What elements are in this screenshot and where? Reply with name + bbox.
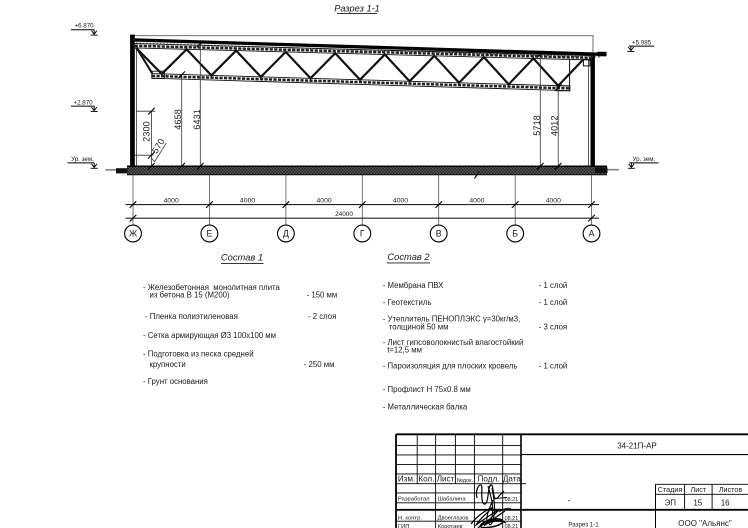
svg-text:- Мембрана ПВХ: - Мембрана ПВХ (383, 281, 444, 290)
svg-text:Подл.: Подл. (478, 474, 500, 483)
svg-text:- 150 мм: - 150 мм (307, 290, 338, 299)
svg-text:Кол.: Кол. (418, 474, 434, 483)
svg-text:ЭП: ЭП (664, 499, 676, 508)
svg-text:4012: 4012 (550, 115, 560, 136)
svg-text:08.21: 08.21 (505, 516, 518, 522)
svg-text:16: 16 (721, 499, 730, 508)
svg-text:Разрез 1-1: Разрез 1-1 (568, 521, 599, 528)
svg-text:+2.870: +2.870 (73, 99, 93, 106)
svg-text:- Пленка полиэтиленовая: - Пленка полиэтиленовая (145, 312, 238, 321)
svg-text:из бетона В 15 (М200): из бетона В 15 (М200) (150, 290, 230, 299)
svg-text:Разрез 1-1: Разрез 1-1 (334, 3, 380, 13)
svg-text:Лист: Лист (690, 485, 706, 494)
svg-text:- Грунт основания: - Грунт основания (143, 377, 208, 386)
svg-text:570: 570 (150, 137, 167, 155)
svg-text:2300: 2300 (141, 121, 151, 142)
svg-text:Д: Д (283, 228, 289, 238)
svg-text:- 2 слоя: - 2 слоя (308, 312, 336, 321)
svg-text:А: А (589, 228, 595, 238)
svg-text:+6.870: +6.870 (74, 23, 94, 30)
svg-text:+5.985: +5.985 (632, 40, 652, 47)
svg-text:Состав 2: Состав 2 (387, 251, 430, 262)
svg-text:Ж: Ж (129, 228, 137, 238)
svg-text:В: В (436, 228, 442, 238)
svg-text:- Сетка армирующая Ø3 100х100: - Сетка армирующая Ø3 100х100 мм (143, 331, 276, 340)
svg-text:4000: 4000 (393, 197, 408, 204)
svg-text:Шабалина: Шабалина (438, 496, 467, 502)
svg-text:Н. контр.: Н. контр. (398, 515, 422, 521)
svg-text:Ур. зем.: Ур. зем. (71, 156, 94, 163)
svg-text:Стадия: Стадия (658, 485, 683, 494)
svg-text:4658: 4658 (173, 109, 183, 130)
svg-text:крупности: крупности (150, 360, 186, 369)
svg-text:- Пароизоляция для плоских кро: - Пароизоляция для плоских кровель (383, 361, 518, 370)
svg-text:- 250 мм: - 250 мм (304, 360, 335, 369)
svg-text:34-21П-АР: 34-21П-АР (617, 442, 657, 451)
svg-text:Коротаев: Коротаев (438, 524, 463, 528)
svg-text:- 1 слой: - 1 слой (539, 298, 568, 307)
svg-text:4000: 4000 (546, 197, 561, 204)
svg-text:08.21: 08.21 (505, 497, 518, 503)
svg-text:- Подготовка из песка средней: - Подготовка из песка средней (143, 350, 254, 359)
svg-text:4000: 4000 (469, 197, 484, 204)
svg-text:08.21: 08.21 (505, 524, 518, 528)
svg-text:№док.: №док. (457, 478, 474, 484)
svg-text:4000: 4000 (317, 197, 332, 204)
svg-text:6431: 6431 (192, 109, 202, 130)
svg-text:- Металлическая балка: - Металлическая балка (383, 402, 468, 411)
svg-text:4000: 4000 (164, 197, 179, 204)
svg-text:Двоеглазов: Двоеглазов (438, 515, 469, 521)
svg-text:24000: 24000 (335, 211, 353, 218)
svg-text:Лист: Лист (437, 474, 455, 483)
svg-text:- 1 слой: - 1 слой (539, 281, 568, 290)
svg-text:- 3 слоя: - 3 слоя (539, 322, 567, 331)
svg-text:Разработал: Разработал (398, 496, 430, 502)
svg-text:Листов: Листов (719, 485, 743, 494)
svg-text:Дата: Дата (503, 474, 521, 483)
svg-text:15: 15 (693, 499, 702, 508)
svg-text:- Профлист Н 75х0.8 мм: - Профлист Н 75х0.8 мм (383, 385, 471, 394)
svg-text:Ур. зем.: Ур. зем. (633, 156, 656, 163)
svg-text:ООО "Альянс": ООО "Альянс" (678, 519, 732, 528)
svg-text:Е: Е (206, 228, 212, 238)
svg-text:ГИП: ГИП (398, 524, 409, 528)
svg-text:Изм.: Изм. (398, 474, 415, 483)
svg-text:Состав 1: Состав 1 (221, 252, 263, 263)
svg-text:- Геотекстиль: - Геотекстиль (383, 298, 432, 307)
svg-text:Б: Б (512, 228, 518, 238)
svg-text:толщиной 50 мм: толщиной 50 мм (389, 322, 449, 331)
svg-text:- 1 слой: - 1 слой (539, 361, 568, 370)
svg-text:4000: 4000 (240, 197, 255, 204)
svg-text:t=12,5 мм: t=12,5 мм (387, 346, 422, 355)
svg-text:5718: 5718 (532, 115, 542, 136)
svg-text:Г: Г (360, 228, 365, 238)
